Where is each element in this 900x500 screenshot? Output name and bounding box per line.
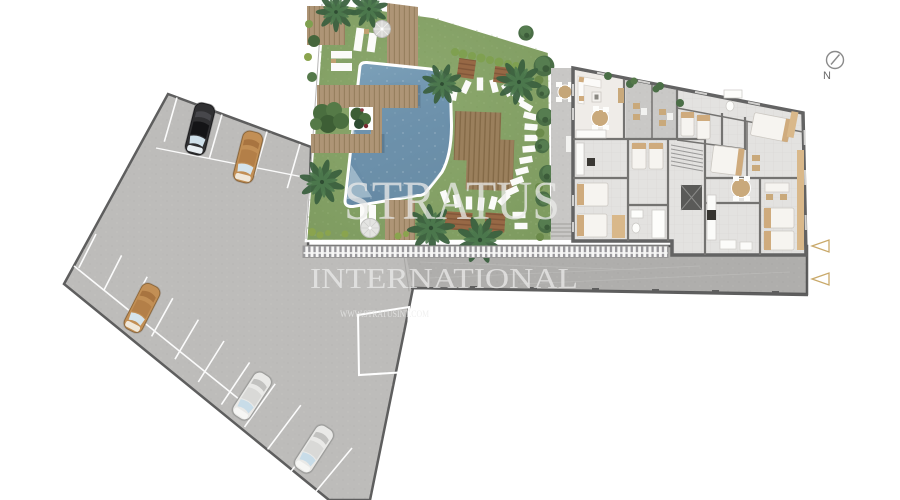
svg-text:STRATUS: STRATUS (344, 170, 560, 231)
svg-text:N: N (823, 70, 831, 82)
svg-text:WWW.STRATUSINT.COM: WWW.STRATUSINT.COM (340, 310, 429, 320)
svg-text:INTERNATIONAL: INTERNATIONAL (310, 264, 578, 295)
